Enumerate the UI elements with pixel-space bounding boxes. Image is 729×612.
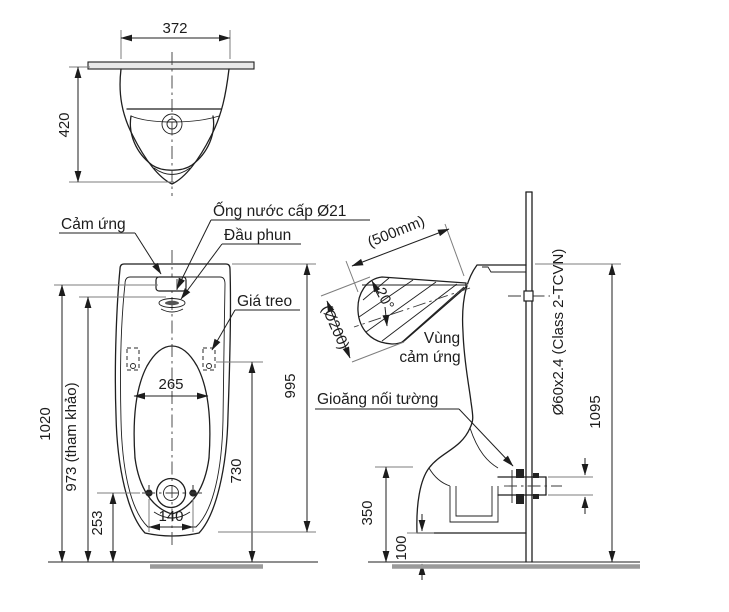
label-sensor: Cảm ứng [61,216,126,233]
label-sensing-zone-1: Vùng [424,330,460,347]
label-hanger: Giá treo [237,293,292,310]
dim-rim-height: 730 [228,458,245,483]
dim-base-clearance: 100 [393,535,410,560]
supply-fitting [524,291,533,301]
dim-sensing-diameter: (Ø200) [318,302,353,352]
technical-drawing-page: 372 420 [0,0,729,612]
spray-head-slot [165,301,179,305]
hanger-bracket-right [203,348,215,370]
label-spray-head: Đầu phun [224,227,291,244]
trap-inner [456,486,492,516]
top-view: 372 420 [56,20,254,196]
cone-axis-centerline [354,288,470,327]
bowl-outline-top [120,69,229,184]
dim-top-width: 372 [162,20,187,37]
leader-hanger [212,310,235,350]
label-wall-gasket: Gioăng nối tường [317,391,438,408]
leader-supply-pipe [177,220,211,289]
dim-top-depth: 420 [56,112,73,137]
wall-gasket-bottom [516,494,524,504]
leader-spray-head [181,244,222,299]
trap-channel [470,428,498,468]
label-sensing-zone-2: cảm ứng [399,349,460,366]
bowl-inner-top-curve [131,116,219,122]
front-view: 1020 973 (tham khảo) 265 730 995 253 140… [37,202,370,567]
dim-overall-height: 1095 [587,395,604,428]
dim-reference-height: 973 (tham khảo) [63,382,80,491]
deck-inner-edge [482,267,526,272]
hanger-bracket-left [127,348,139,370]
dim-sensing-distance: (500mm) [365,213,427,251]
dim-drain-pipe-spec: Ø60x2.4 (Class 2-TCVN) [550,249,567,416]
dim-bolt-pitch: 140 [158,508,183,525]
dim-outlet-height: 350 [359,500,376,525]
urinal-installation-drawing: 372 420 [0,0,729,612]
trap-outer [450,486,498,522]
dim-drain-height: 253 [89,510,106,535]
side-view: (500mm) (Ø200) 20° Vùng cảm ứng Gioăng n… [315,192,640,580]
mounting-shelf [88,62,254,69]
dim-body-height: 995 [282,373,299,398]
leader-sensor [135,233,161,274]
dim-opening-width: 265 [158,376,183,393]
label-supply-pipe: Ống nước cấp Ø21 [213,202,346,220]
dim-sensor-height: 1020 [37,407,54,440]
wall-gasket-top [516,469,524,478]
